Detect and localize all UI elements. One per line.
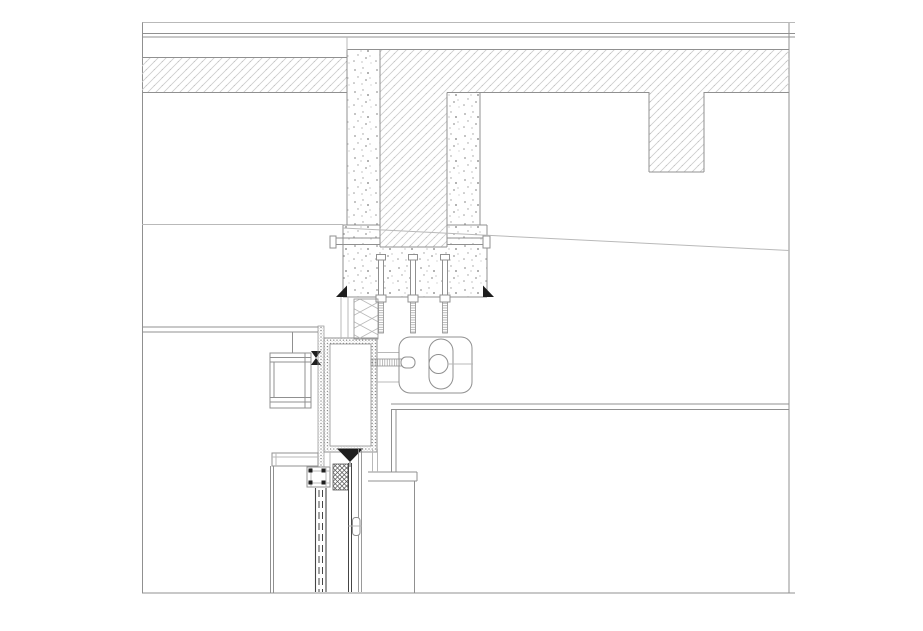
weld-symbol-left bbox=[336, 286, 347, 298]
fixing-rod-threaded bbox=[371, 359, 403, 366]
grout-strip-right bbox=[448, 93, 481, 225]
anchor-rod2-nut bbox=[408, 295, 418, 302]
gasket-dot-1 bbox=[309, 469, 313, 473]
slab-right-hatch bbox=[380, 50, 789, 92]
anchor-rod1-body bbox=[379, 260, 384, 295]
gasket-dot-3 bbox=[322, 469, 326, 473]
mullion-box-inner bbox=[330, 344, 371, 446]
anchor-rod3-cap bbox=[441, 255, 450, 261]
anchor-rod3-thread bbox=[443, 302, 448, 333]
interior-sill-board bbox=[272, 453, 318, 466]
column-hatch bbox=[380, 92, 447, 247]
mullion-face-strip bbox=[318, 326, 324, 467]
setting-block bbox=[333, 464, 348, 490]
side-bolt-head-left bbox=[330, 236, 336, 248]
fixing-rod-cap bbox=[401, 357, 415, 368]
anchor-rod3-nut bbox=[440, 295, 450, 302]
side-bolt-head-right bbox=[483, 236, 490, 248]
anchor-rod2-cap bbox=[409, 255, 418, 261]
glazing-gasket-wedge bbox=[337, 449, 363, 463]
adjustment-bolt-circle bbox=[429, 355, 448, 374]
grout-strip-left bbox=[348, 50, 381, 225]
anchor-rod3-body bbox=[443, 260, 448, 295]
gasket-dot-2 bbox=[309, 481, 313, 485]
anchor-rod2-body bbox=[411, 260, 416, 295]
detail-drawing bbox=[0, 0, 923, 631]
insulation-strip bbox=[354, 299, 378, 339]
downstand-hatch bbox=[649, 92, 704, 172]
gasket-dot-4 bbox=[322, 481, 326, 485]
anchor-rod2-thread bbox=[411, 302, 416, 333]
screed-left-hatch bbox=[142, 58, 347, 92]
weld-symbol-right bbox=[483, 286, 494, 298]
drawing-root bbox=[142, 23, 795, 594]
cad-viewport bbox=[0, 0, 923, 631]
anchor-rod1-cap bbox=[377, 255, 386, 261]
anchor-rod1-thread bbox=[379, 302, 384, 333]
